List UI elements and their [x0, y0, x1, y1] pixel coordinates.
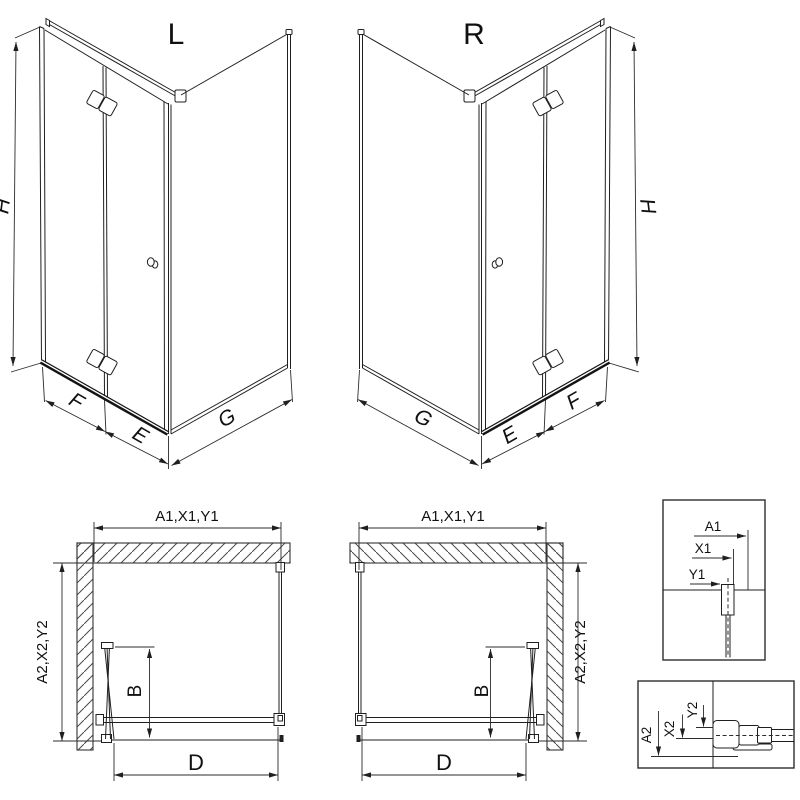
dim-label-depth-right: A2,X2,Y2	[572, 620, 589, 683]
plan-left-lineart	[53, 522, 290, 781]
iso-left-lineart	[11, 19, 293, 470]
iso-left-title: L	[168, 18, 185, 51]
plan-right-lineart	[350, 522, 587, 781]
dim-label-b-left: B	[125, 685, 146, 698]
dim-label-d-left: D	[188, 750, 204, 775]
dim-label-width-left: A1,X1,Y1	[155, 508, 218, 525]
plan-left-view: A1,X1,Y1 A2,X2,Y2 B D	[34, 508, 290, 781]
detail-label-y1: Y1	[689, 567, 706, 582]
dim-label-f-right: F	[562, 388, 586, 415]
detail-label-x1: X1	[695, 541, 712, 556]
detail-label-x2: X2	[662, 721, 677, 738]
dim-label-depth-left: A2,X2,Y2	[34, 620, 51, 683]
dim-label-width-right: A1,X1,Y1	[421, 508, 484, 525]
dim-label-g-right: G	[410, 404, 435, 432]
shower-enclosure-technical-drawing: L H F E G R H F E G A1,X1,Y1 A2,X2,Y2 B …	[0, 0, 800, 800]
dim-label-g-left: G	[214, 404, 239, 432]
dim-label-d-right: D	[436, 750, 452, 775]
iso-right-title: R	[463, 18, 485, 51]
dim-label-b-right: B	[472, 685, 493, 698]
detail-label-a1: A1	[705, 519, 722, 534]
wall-profile-section	[713, 721, 739, 749]
detail-label-a2: A2	[639, 727, 654, 744]
detail-depth-box: A2 X2 Y2	[638, 681, 794, 768]
iso-right-view: R H F E G	[358, 18, 660, 469]
detail-width-box: A1 X1 Y1	[663, 500, 765, 660]
dim-label-h-left: H	[0, 196, 15, 215]
iso-left-view: L H F E G	[0, 18, 292, 469]
detail-label-y2: Y2	[685, 702, 700, 719]
plan-right-view: A1,X1,Y1 A2,X2,Y2 B D	[350, 508, 589, 781]
dim-label-f-left: F	[65, 388, 89, 415]
dim-label-h-right: H	[635, 197, 660, 216]
iso-right-lineart	[358, 19, 640, 470]
